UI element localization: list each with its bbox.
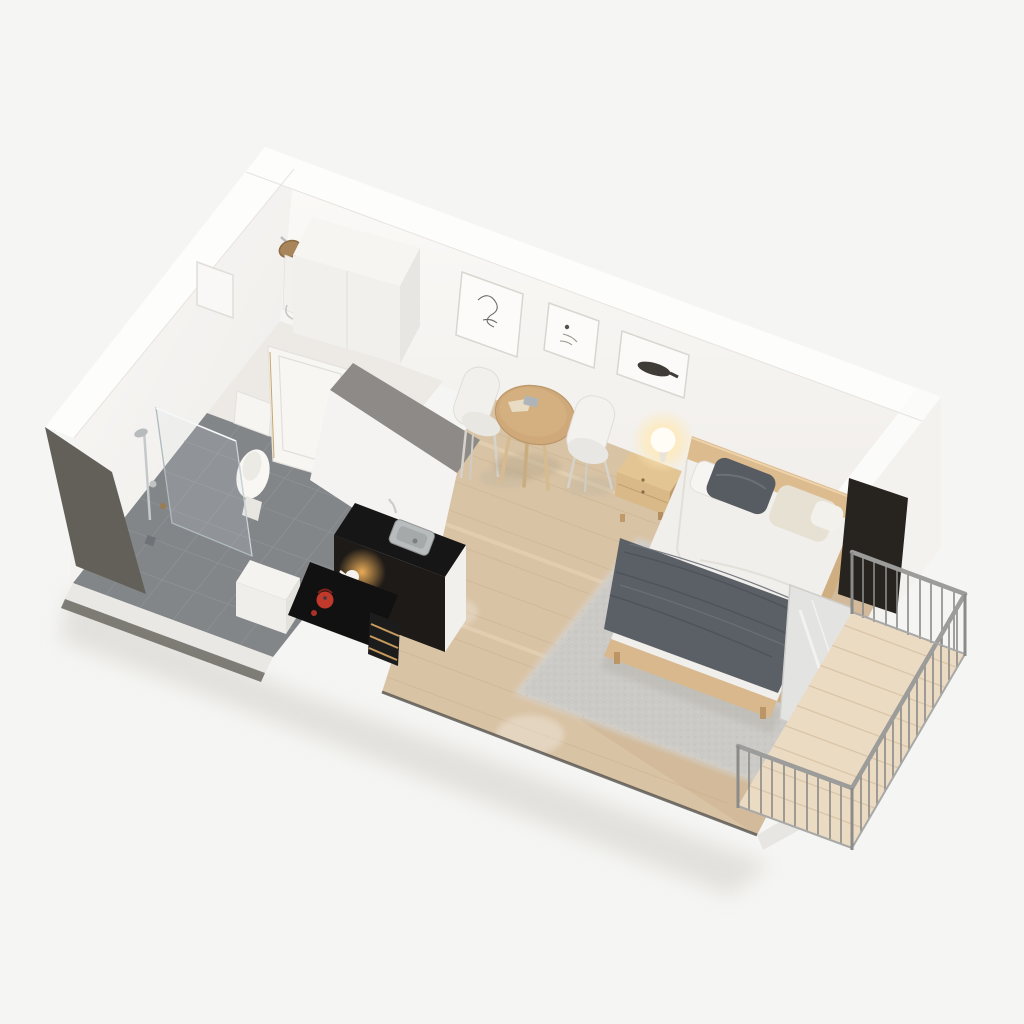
apartment-scene [0,0,1024,1024]
soap-dish [160,503,166,509]
hand-shower-icon [150,481,157,488]
lamp-shade [651,428,676,453]
floorplan-render [0,0,1024,1024]
